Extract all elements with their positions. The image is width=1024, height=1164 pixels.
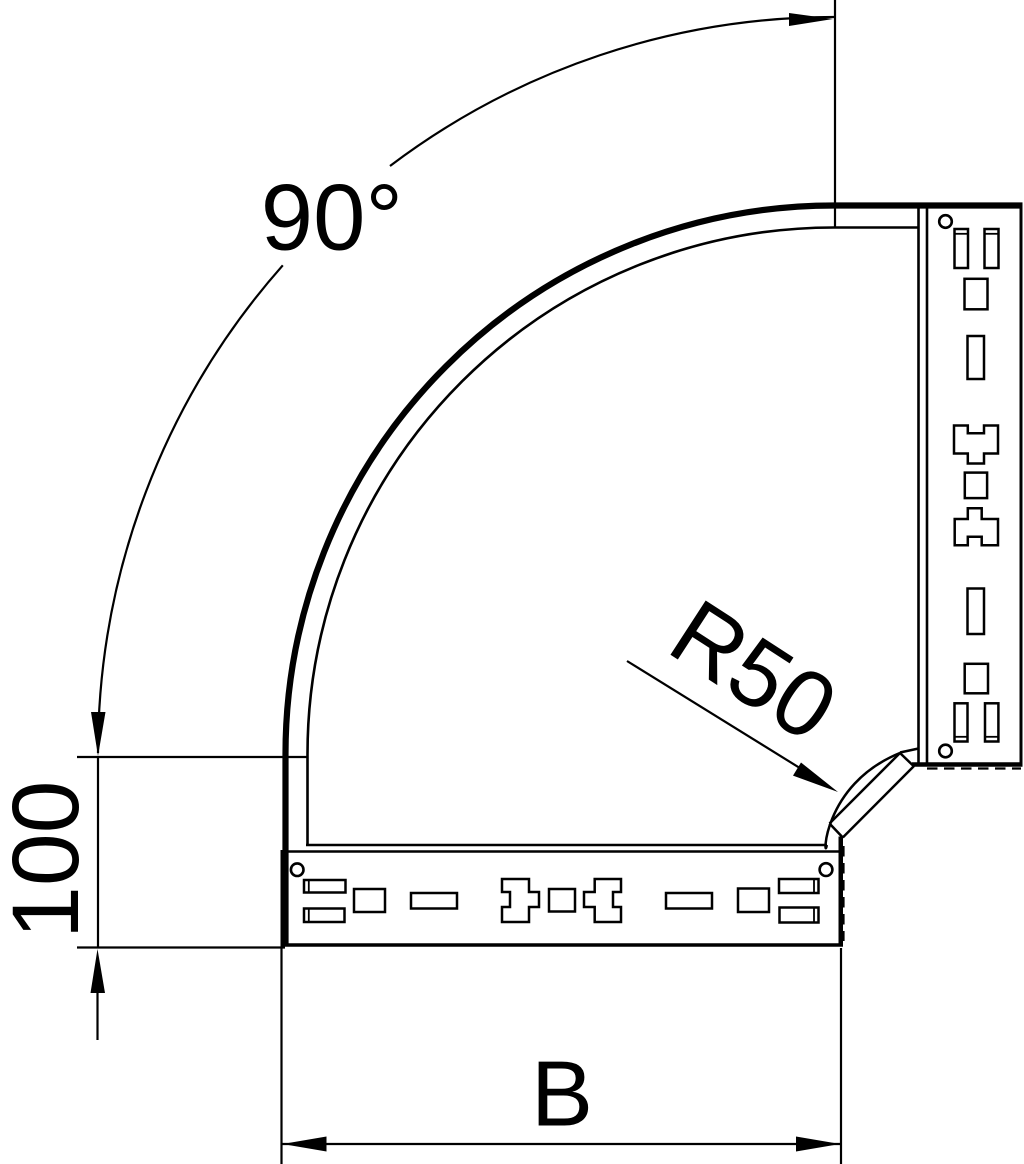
svg-text:R50: R50 [653, 579, 855, 761]
svg-text:90°: 90° [261, 165, 403, 270]
svg-text:100: 100 [0, 780, 99, 939]
svg-text:B: B [531, 1042, 593, 1146]
